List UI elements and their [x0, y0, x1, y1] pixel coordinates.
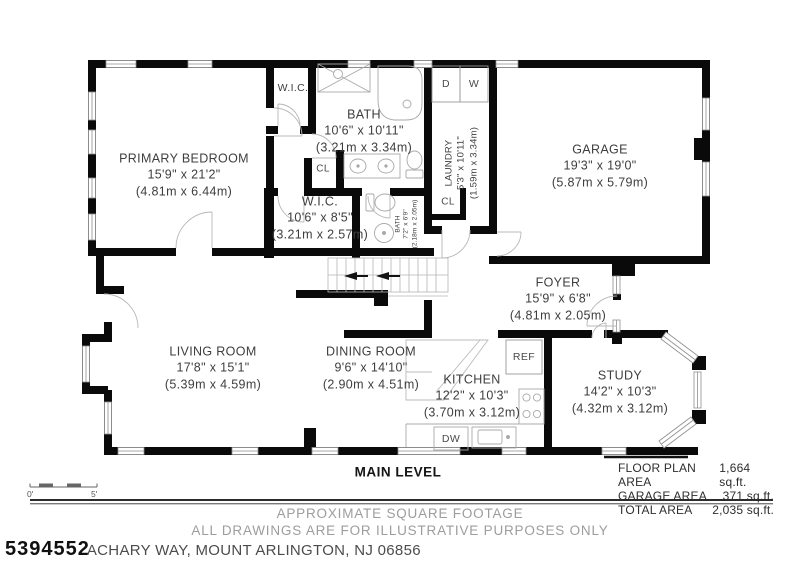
stair-direction-arrows	[344, 272, 400, 280]
room-label-laundry: LAUNDRY 5'3" x 10'11" (1.59m x 3.34m)	[443, 127, 480, 199]
room-label-living: LIVING ROOM 17'8" x 15'1" (5.39m x 4.59m…	[165, 344, 261, 393]
area-row: FLOOR PLAN AREA 1,664 sq.ft.	[618, 461, 774, 489]
street-address: ACHARY WAY, MOUNT ARLINGTON, NJ 06856	[87, 542, 421, 559]
room-label-bath-main: BATH 10'6" x 10'11" (3.21m x 3.34m)	[316, 107, 412, 156]
range-icon	[519, 389, 544, 424]
washer-label: W	[469, 78, 479, 90]
closet-label-cl2: CL	[441, 197, 455, 208]
fridge-label: REF	[513, 351, 535, 363]
room-label-foyer: FOYER 15'9" x 6'8" (4.81m x 2.05m)	[510, 275, 606, 324]
area-label: GARAGE AREA	[618, 489, 707, 503]
level-title: MAIN LEVEL	[355, 465, 442, 480]
area-row: GARAGE AREA 371 sq.ft.	[618, 489, 774, 503]
room-label-kitchen: KITCHEN 12'2" x 10'3" (3.70m x 3.12m)	[424, 372, 520, 421]
room-label-study: STUDY 14'2" x 10'3" (4.32m x 3.12m)	[572, 368, 668, 417]
footer-address-line: 5394552 ACHARY WAY, MOUNT ARLINGTON, NJ …	[5, 538, 421, 561]
room-label-garage: GARAGE 19'3" x 19'0" (5.87m x 5.79m)	[552, 142, 648, 191]
area-label: FLOOR PLAN AREA	[618, 461, 719, 489]
shower-icon	[318, 64, 370, 92]
room-label-wic-top: W.I.C.	[278, 82, 309, 96]
room-label-dining: DINING ROOM 9'6" x 14'10" (2.90m x 4.51m…	[323, 344, 419, 393]
disclaimer-line-1: APPROXIMATE SQUARE FOOTAGE	[0, 506, 800, 523]
floor-plan-page: PRIMARY BEDROOM 15'9" x 21'2" (4.81m x 6…	[0, 0, 800, 565]
sink-icon	[375, 224, 394, 243]
listing-number: 5394552	[5, 538, 90, 561]
toilet-icon	[366, 194, 395, 211]
room-label-wic-mid: W.I.C. 10'6" x 8'5" (3.21m x 2.57m)	[272, 194, 368, 243]
scale-bar	[30, 484, 97, 488]
vanity-sinks-icon	[344, 154, 400, 178]
scale-start-label: 0'	[27, 489, 33, 499]
washer-dryer-boxes	[432, 66, 488, 102]
scale-end-label: 5'	[91, 489, 97, 499]
kitchen-counter	[406, 424, 544, 450]
disclaimer-text: APPROXIMATE SQUARE FOOTAGE ALL DRAWINGS …	[0, 506, 800, 539]
closet-label-cl1: CL	[316, 164, 330, 175]
dishwasher-label: DW	[442, 433, 460, 445]
room-label-primary-bedroom: PRIMARY BEDROOM 15'9" x 21'2" (4.81m x 6…	[119, 151, 249, 200]
dryer-label: D	[442, 78, 450, 90]
disclaimer-line-2: ALL DRAWINGS ARE FOR ILLUSTRATIVE PURPOS…	[0, 523, 800, 540]
area-value: 1,664 sq.ft.	[719, 461, 774, 489]
room-label-bath-small: BATH 7'2" x 6'9" (2.18m x 2.05m)	[394, 200, 419, 249]
area-value: 371 sq.ft.	[723, 489, 774, 503]
